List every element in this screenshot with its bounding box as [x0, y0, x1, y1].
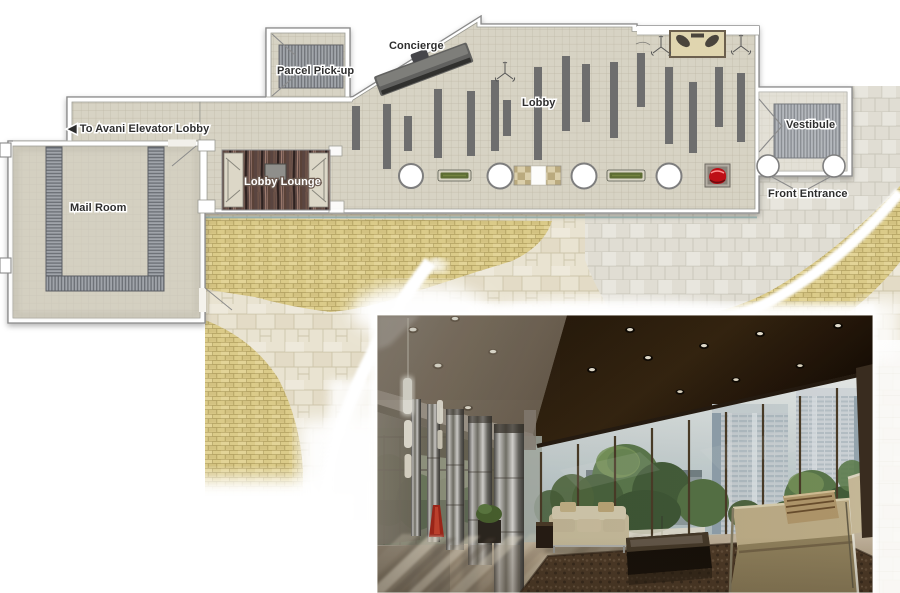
svg-text:Parcel Pick-up: Parcel Pick-up	[277, 65, 354, 77]
svg-text:Concierge: Concierge	[389, 40, 444, 52]
svg-text:Front Entrance: Front Entrance	[768, 188, 848, 200]
svg-text:Lobby: Lobby	[522, 97, 556, 109]
svg-text:Vestibule: Vestibule	[786, 119, 835, 131]
svg-text:Lobby Lounge: Lobby Lounge	[244, 176, 321, 188]
svg-text:Mail Room: Mail Room	[70, 202, 127, 214]
svg-text:◀ To Avani Elevator Lobby: ◀ To Avani Elevator Lobby	[67, 123, 210, 135]
